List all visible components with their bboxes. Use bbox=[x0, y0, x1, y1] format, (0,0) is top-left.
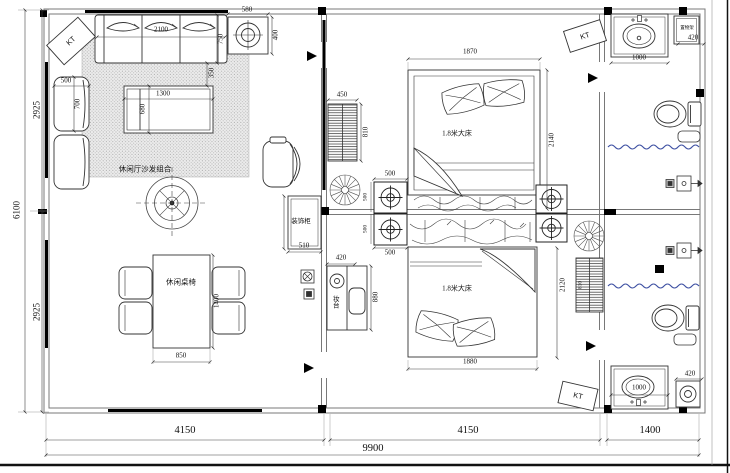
floor-plan-drawing bbox=[0, 0, 730, 473]
light-switch-symbols bbox=[301, 270, 314, 299]
toilet-top bbox=[654, 101, 701, 127]
office-chair bbox=[263, 137, 300, 187]
bed-2 bbox=[408, 247, 537, 357]
dim-total-height: 6100 bbox=[13, 201, 22, 219]
ac-vent-pair-left bbox=[374, 182, 407, 245]
shower-curtain-bottom bbox=[608, 284, 699, 288]
sofa bbox=[95, 15, 227, 63]
dim-radiator-depth: 810 bbox=[578, 281, 584, 289]
dim-total-width: 9900 bbox=[363, 444, 384, 455]
toilet-top-mat bbox=[678, 131, 700, 142]
shower-curtain-top bbox=[608, 145, 699, 149]
dim-vent-bottom-depth: 500 bbox=[363, 225, 369, 233]
dining-table bbox=[153, 255, 210, 348]
armchair-2 bbox=[54, 135, 89, 189]
shower-head-top bbox=[666, 176, 702, 191]
dim-armchair-width: 500 bbox=[61, 78, 72, 85]
dim-dresser-length: 880 bbox=[373, 292, 380, 303]
label-bed1: 1.8米大床 bbox=[442, 131, 472, 138]
bed-1 bbox=[408, 70, 540, 196]
ceiling-fan-bedroom2 bbox=[574, 221, 604, 251]
armchair-1 bbox=[54, 77, 89, 131]
dim-bed2-length: 2120 bbox=[560, 278, 567, 292]
dim-coffee-depth: 680 bbox=[140, 104, 147, 115]
dim-sofa-depth: 750 bbox=[218, 34, 225, 45]
label-decor-cabinet: 装饰柜 bbox=[291, 219, 311, 226]
dim-coffee-width: 1300 bbox=[156, 91, 170, 98]
toilet-bottom-mat bbox=[674, 334, 696, 345]
dim-bed2-width: 1880 bbox=[463, 359, 477, 366]
dim-vent-bottom-width: 500 bbox=[385, 250, 396, 257]
ceiling-fan-bedroom1 bbox=[330, 175, 360, 205]
washing-machine bbox=[676, 381, 700, 407]
dim-hood-width: 580 bbox=[242, 7, 253, 14]
label-storage-rack: 置物架 bbox=[680, 26, 694, 31]
shower-head-bottom bbox=[666, 243, 702, 258]
exhaust-fan-box bbox=[228, 17, 268, 54]
dim-dining-width: 850 bbox=[176, 353, 187, 360]
dim-dresser-width: 420 bbox=[336, 255, 347, 262]
label-dresser: 妆台 bbox=[331, 296, 338, 309]
dim-washer-width: 420 bbox=[685, 371, 696, 378]
dim-bedroom-width: 4150 bbox=[458, 426, 479, 437]
dim-bath-width: 1400 bbox=[640, 426, 661, 437]
dim-sink-top-width: 1000 bbox=[632, 55, 646, 62]
label-dining: 休闲桌椅 bbox=[166, 278, 196, 286]
dim-storage-rack-width: 420 bbox=[688, 35, 699, 42]
bed-1-foot-fabric bbox=[414, 196, 532, 211]
dim-sofa-width: 2100 bbox=[154, 27, 168, 34]
dim-upper-height: 2925 bbox=[33, 101, 42, 119]
dim-sink-bottom-width: 1000 bbox=[632, 385, 646, 392]
ceiling-fan-living bbox=[136, 167, 208, 239]
dim-hood-depth: 400 bbox=[273, 30, 280, 41]
dim-cabinet-width: 510 bbox=[299, 243, 310, 250]
label-bed2: 1.8米大床 bbox=[442, 286, 472, 293]
bed-2-head-fabric bbox=[410, 219, 532, 244]
dim-lower-height: 2925 bbox=[33, 303, 42, 321]
dim-wardrobe-depth: 810 bbox=[363, 127, 370, 138]
wardrobe-shelf bbox=[328, 104, 357, 161]
dim-vent-top-depth: 500 bbox=[363, 193, 369, 201]
floor-plan: 9900 4150 4150 1400 6100 2925 2925 2100 … bbox=[0, 0, 730, 473]
label-ac-unit-3: KT bbox=[572, 391, 583, 400]
label-sofa-area: 休闲厅沙发组合 bbox=[119, 165, 172, 173]
dim-bed1-width: 1870 bbox=[463, 49, 477, 56]
sink-top bbox=[611, 14, 668, 57]
toilet-bottom bbox=[652, 305, 699, 331]
dim-living-width: 4150 bbox=[175, 426, 196, 437]
dim-vent-top-width: 500 bbox=[385, 171, 396, 178]
ac-vent-pair-right bbox=[536, 185, 567, 242]
dim-bed1-length: 2140 bbox=[549, 133, 556, 147]
dim-sofa-gap: 350 bbox=[209, 68, 216, 79]
dim-wardrobe-width: 450 bbox=[337, 92, 348, 99]
dim-dining-length: 1400 bbox=[214, 294, 221, 308]
dim-armchair-depth: 700 bbox=[75, 99, 82, 110]
